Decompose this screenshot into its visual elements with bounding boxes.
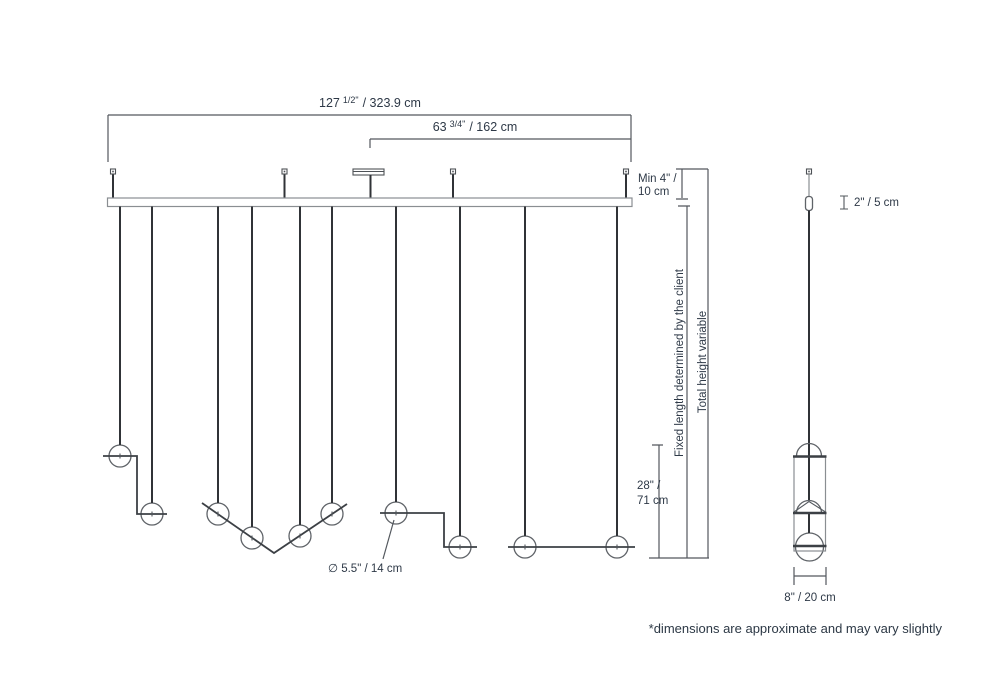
pendant-globes (109, 445, 628, 558)
stem-dimension: 2" / 5 cm (840, 196, 899, 209)
overall-width-dimension: 1271/2"/ 323.9 cm (108, 95, 631, 162)
side-ceiling-mount (806, 169, 813, 211)
canopy-bar (108, 198, 633, 207)
svg-text:28" /: 28" / (637, 480, 661, 492)
side-fixture-body (793, 444, 827, 562)
svg-text:Min 4" /: Min 4" / (638, 173, 677, 185)
fixture-width-dimension: 8" / 20 cm (784, 567, 835, 604)
stem-dimension-label: 2" / 5 cm (854, 197, 899, 209)
svg-text:10 cm: 10 cm (638, 186, 669, 198)
dimension-drawing: 1271/2"/ 323.9 cm 633/4"/ 162 cm (0, 0, 1000, 700)
lower-drop-label: 28" / 71 cm (637, 480, 668, 507)
globe-diameter-label: ∅ 5.5" / 14 cm (328, 563, 402, 575)
suspension-cables (120, 207, 617, 537)
svg-text:71 cm: 71 cm (637, 495, 668, 507)
globe-diameter-callout: ∅ 5.5" / 14 cm (328, 520, 402, 575)
side-view-pendant: 2" / 5 cm 8" / 20 cm (784, 169, 899, 604)
vertical-dimensions: Min 4" / 10 cm Fixed length determined b… (637, 169, 709, 558)
linear-canopy (108, 169, 633, 207)
cable-adjuster (806, 197, 813, 211)
footnote: *dimensions are approximate and may vary… (649, 621, 943, 636)
connecting-rods (103, 454, 635, 554)
fixed-length-label: Fixed length determined by the client (674, 268, 686, 457)
spec-sheet-canvas: 1271/2"/ 323.9 cm 633/4"/ 162 cm (0, 0, 1000, 700)
center-to-end-label: 633/4"/ 162 cm (433, 119, 518, 134)
fixture-width-label: 8" / 20 cm (784, 592, 835, 604)
min-drop-label: Min 4" / 10 cm (638, 173, 677, 198)
central-canopy-plate (353, 169, 384, 198)
center-to-end-dimension: 633/4"/ 162 cm (370, 119, 631, 148)
overall-width-label: 1271/2"/ 323.9 cm (319, 95, 421, 110)
total-height-label: Total height variable (697, 311, 709, 413)
